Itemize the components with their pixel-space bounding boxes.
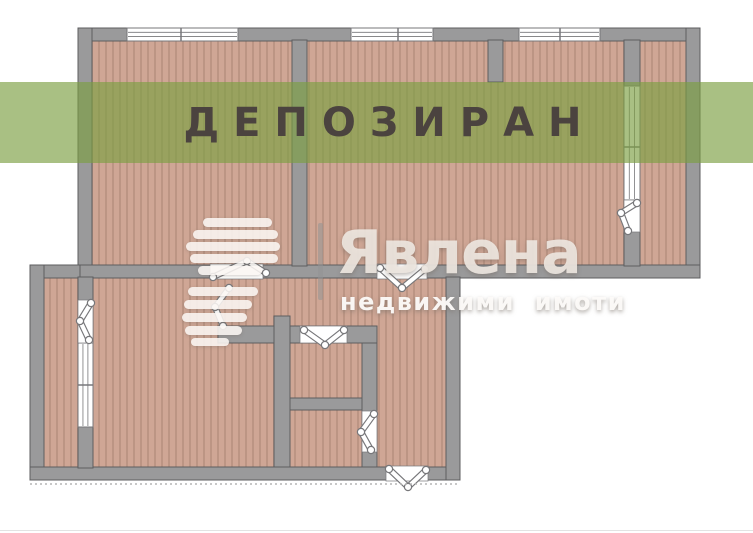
status-banner: ДЕПОЗИРАН: [0, 82, 753, 163]
floorplan-image: ДЕПОЗИРАН Явлена недвижими имоти: [0, 0, 753, 533]
status-banner-text: ДЕПОЗИРАН: [183, 100, 595, 146]
page-bottom-edge: [0, 530, 753, 531]
floorplan-svg: [0, 0, 753, 533]
